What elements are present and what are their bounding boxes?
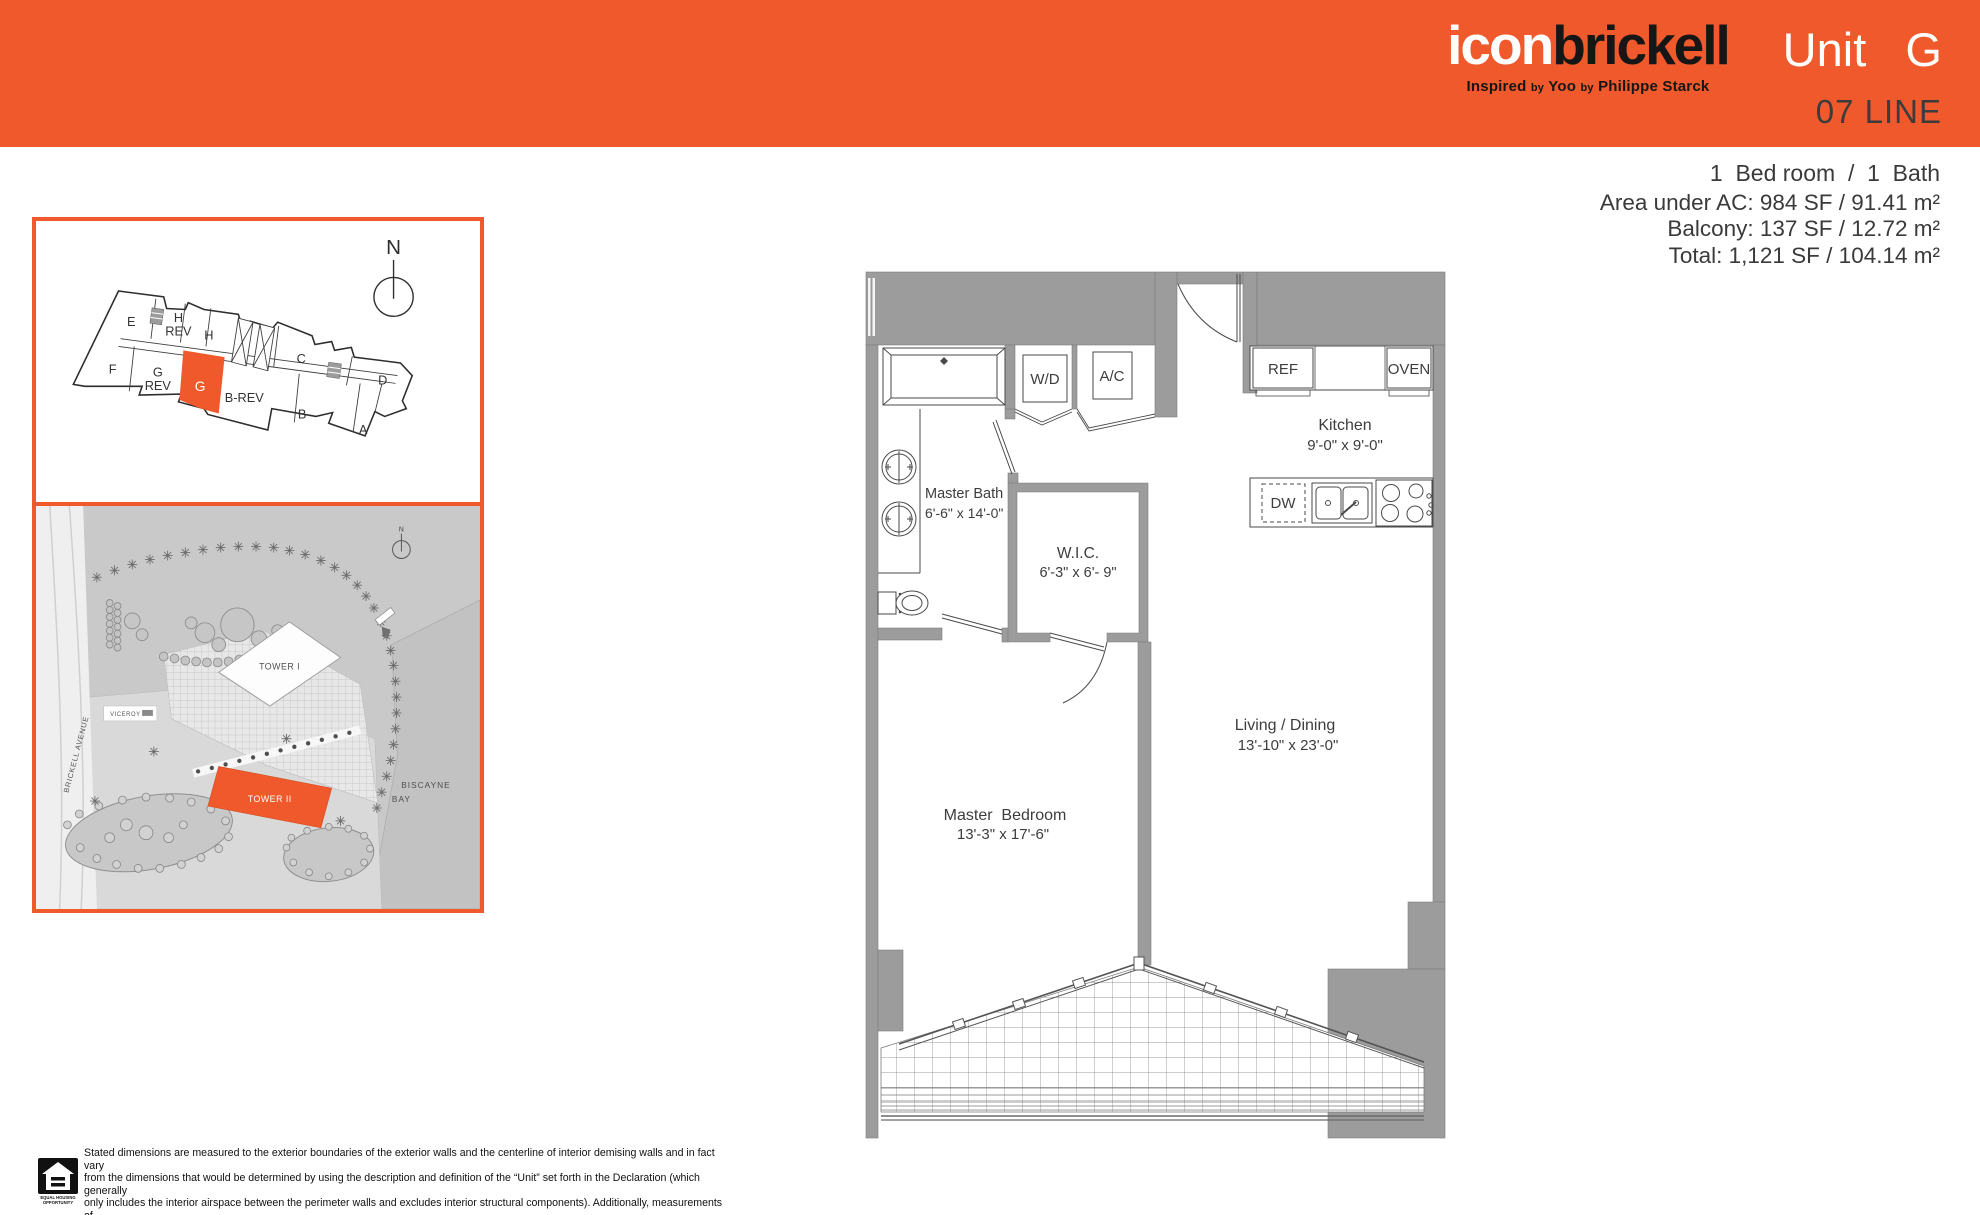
site-tower-1-label: TOWER I bbox=[259, 661, 300, 671]
dw-label: DW bbox=[1271, 495, 1297, 512]
wd-label: W/D bbox=[1030, 371, 1059, 388]
summary-rooms: 1 Bed room / 1 Bath bbox=[1600, 160, 1940, 187]
bedroom-hall-door bbox=[942, 614, 1002, 634]
floorplan-brochure-page: iconbrickell Inspired by Yoo by Philippe… bbox=[0, 0, 1980, 1215]
key-label-f: F bbox=[109, 363, 117, 377]
site-bay-label-2: BAY bbox=[392, 794, 411, 804]
site-viceroy-label: VICEROY bbox=[110, 712, 141, 718]
kitchen-label: Kitchen bbox=[1318, 417, 1371, 434]
header-bar: iconbrickell Inspired by Yoo by Philippe… bbox=[0, 0, 1980, 147]
vanity bbox=[878, 409, 920, 573]
key-label-e: E bbox=[127, 315, 136, 329]
wic-door bbox=[1050, 633, 1107, 703]
closet-doors bbox=[1015, 409, 1155, 431]
disclaimer-line: from the dimensions that would be determ… bbox=[84, 1172, 724, 1197]
disclaimer-text: Stated dimensions are measured to the ex… bbox=[84, 1147, 724, 1215]
brand-tagline: Inspired by Yoo by Philippe Starck bbox=[1438, 79, 1738, 94]
bedroom-dims: 13'-3" x 17'-6" bbox=[957, 826, 1049, 843]
line-title: 07 LINE bbox=[1816, 93, 1942, 131]
svg-text:N: N bbox=[399, 527, 404, 534]
brand-logo: iconbrickell Inspired by Yoo by Philippe… bbox=[1438, 18, 1738, 94]
window-mullion bbox=[868, 278, 871, 336]
bath-door bbox=[993, 420, 1015, 474]
toilet bbox=[878, 591, 928, 615]
ac-label: A/C bbox=[1099, 368, 1124, 385]
key-plan-box: N E H REV H F G REV G B-REV C D B A bbox=[32, 217, 484, 506]
wic-label: W.I.C. bbox=[1057, 545, 1099, 562]
site-bay-label-1: BISCAYNE bbox=[401, 780, 450, 790]
key-label-a: A bbox=[359, 423, 368, 437]
wic-dims: 6'-3" x 6'- 9" bbox=[1039, 565, 1116, 581]
living-dims: 13'-10" x 23'-0" bbox=[1238, 737, 1339, 754]
oven-label: OVEN bbox=[1388, 361, 1431, 378]
key-plan-drawing: N E H REV H F G REV G B-REV C D B A bbox=[36, 221, 480, 502]
master-bath-dims: 6'-6" x 14'-0" bbox=[925, 505, 1003, 521]
unit-summary: 1 Bed room / 1 Bath Area under AC: 984 S… bbox=[1600, 160, 1940, 269]
site-plan-box: TOWER I TOWER II VICEROY BISCAYNE BAY BR… bbox=[32, 506, 484, 913]
brand-word-brickell: brickell bbox=[1552, 14, 1729, 76]
key-label-hrev1: H bbox=[174, 311, 183, 325]
site-tower-2-label: TOWER II bbox=[248, 794, 292, 804]
eho-caption-2: OPPORTUNITY bbox=[43, 1200, 73, 1205]
summary-total: Total: 1,121 SF / 104.14 m² bbox=[1600, 243, 1940, 270]
disclaimer-line: only includes the interior airspace betw… bbox=[84, 1197, 724, 1215]
equal-housing-logo: EQUAL HOUSING OPPORTUNITY bbox=[36, 1157, 80, 1207]
key-label-g: G bbox=[195, 379, 206, 394]
svg-text:N: N bbox=[386, 236, 401, 259]
living-label: Living / Dining bbox=[1235, 717, 1336, 734]
key-label-c: C bbox=[297, 352, 306, 366]
key-label-brev: B-REV bbox=[225, 391, 265, 405]
ref-label: REF bbox=[1268, 361, 1298, 378]
sink bbox=[882, 450, 916, 484]
summary-area-ac: Area under AC: 984 SF / 91.41 m² bbox=[1600, 190, 1940, 217]
site-plan-drawing: TOWER I TOWER II VICEROY BISCAYNE BAY BR… bbox=[36, 506, 480, 909]
bathtub bbox=[883, 348, 1005, 405]
disclaimer-line: Stated dimensions are measured to the ex… bbox=[84, 1147, 724, 1172]
key-label-hrev2: REV bbox=[165, 325, 192, 339]
key-label-b: B bbox=[298, 407, 307, 421]
key-label-d: D bbox=[378, 373, 387, 387]
floor-plan-drawing: Master Bath 6'-6" x 14'-0" W/D A/C REF O… bbox=[860, 262, 1460, 1150]
kitchen-dims: 9'-0" x 9'-0" bbox=[1307, 437, 1383, 454]
key-label-grev2: REV bbox=[145, 379, 172, 393]
key-label-h: H bbox=[204, 329, 213, 343]
master-bath-label: Master Bath bbox=[925, 486, 1003, 502]
brand-wordmark: iconbrickell bbox=[1438, 18, 1738, 73]
key-label-grev1: G bbox=[153, 366, 163, 380]
summary-balcony: Balcony: 137 SF / 12.72 m² bbox=[1600, 216, 1940, 243]
key-north-arrow-icon: N bbox=[374, 236, 413, 316]
sink bbox=[882, 502, 916, 536]
bedroom-label: Master Bedroom bbox=[944, 807, 1067, 824]
brand-word-icon: icon bbox=[1447, 14, 1552, 76]
unit-title: Unit G bbox=[1783, 22, 1942, 77]
